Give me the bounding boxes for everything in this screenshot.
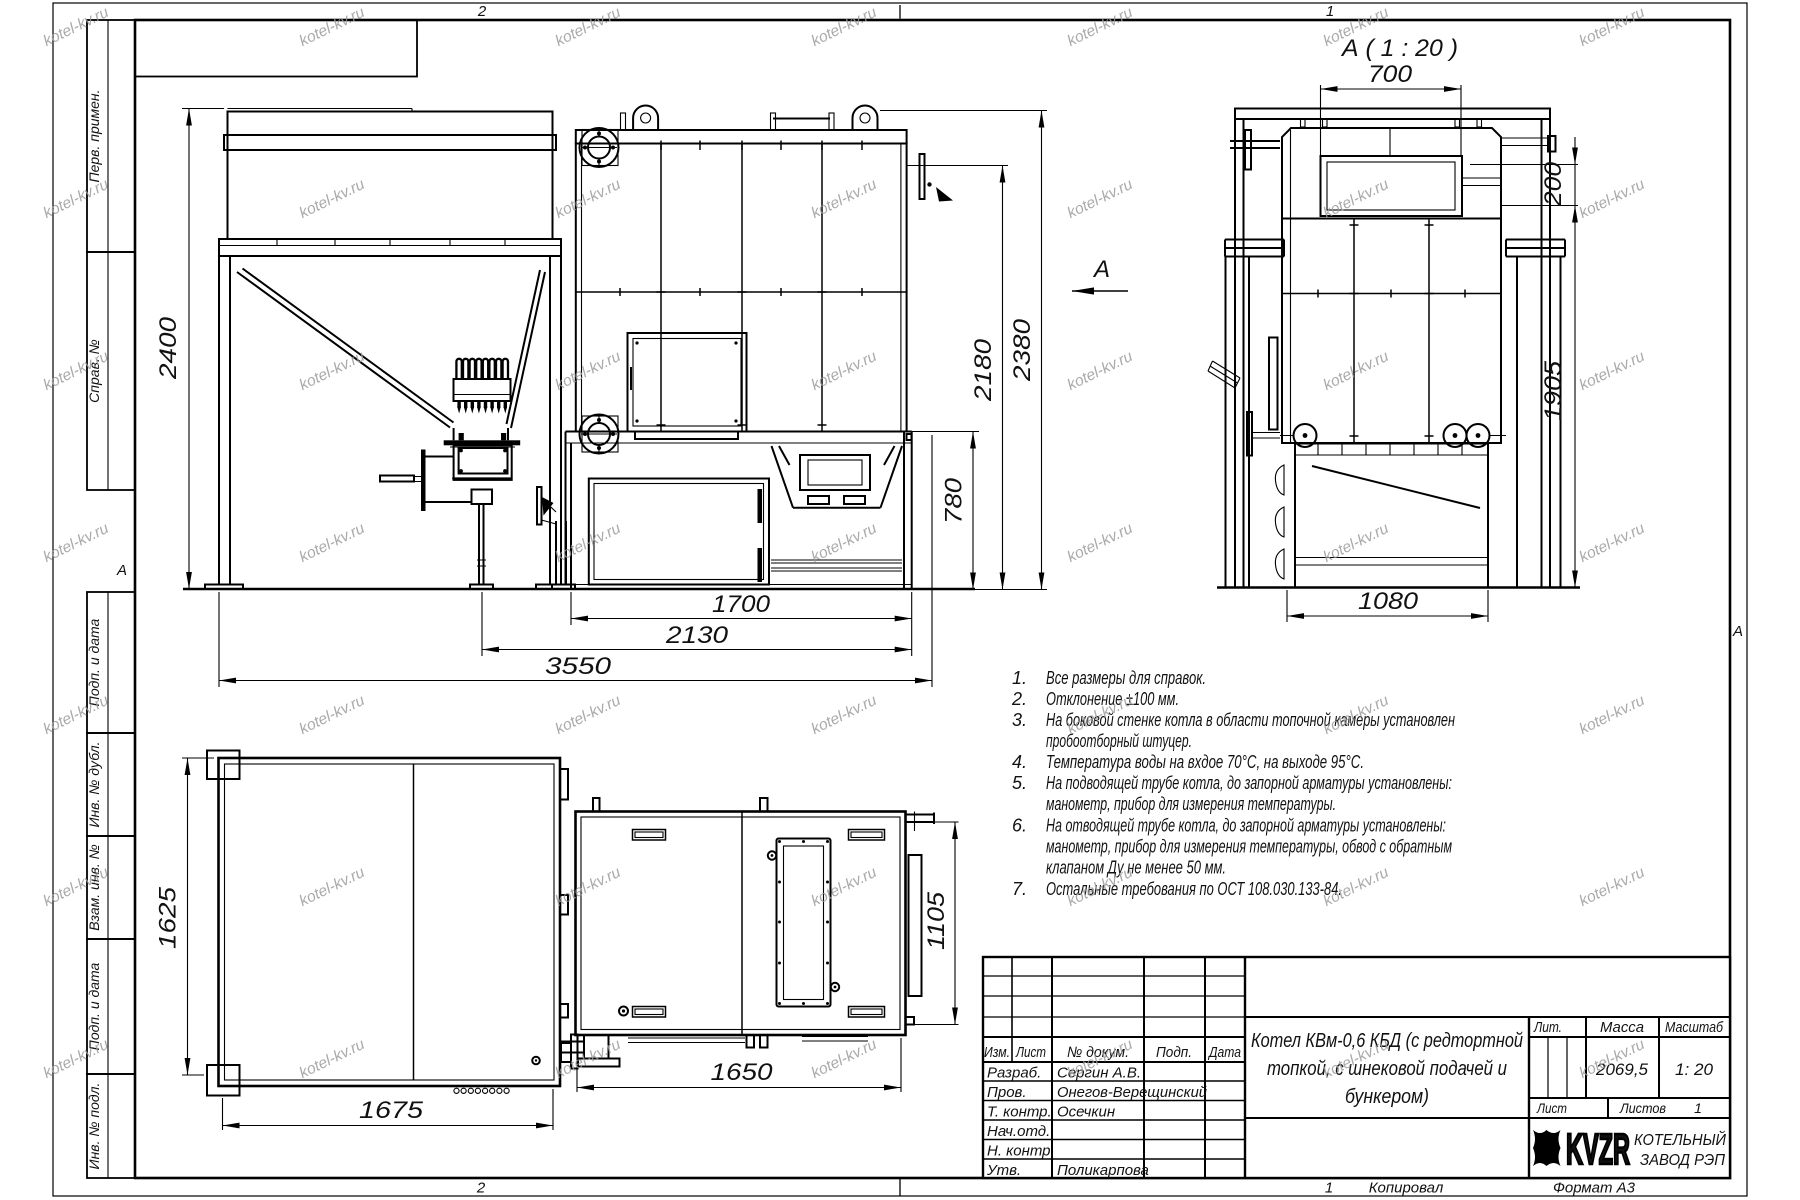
svg-text:2: 2 [476, 1180, 486, 1197]
svg-text:3.: 3. [1012, 710, 1027, 730]
svg-text:Разраб.: Разраб. [987, 1065, 1041, 1082]
svg-text:1080: 1080 [1358, 588, 1419, 615]
svg-text:манометр, прибор для измерения: манометр, прибор для измерения температу… [1046, 794, 1336, 814]
svg-text:6.: 6. [1012, 816, 1027, 836]
svg-text:2: 2 [477, 3, 487, 20]
svg-text:Подп.: Подп. [1156, 1044, 1192, 1061]
svg-text:2400: 2400 [155, 316, 182, 380]
svg-text:А: А [1092, 256, 1110, 283]
svg-text:1700: 1700 [712, 591, 771, 618]
svg-text:Лист: Лист [1536, 1100, 1567, 1116]
svg-text:Масса: Масса [1600, 1019, 1644, 1036]
svg-text:1105: 1105 [923, 891, 950, 950]
svg-text:манометр, прибор для измерения: манометр, прибор для измерения температу… [1046, 837, 1452, 857]
svg-text:топкой, с шнековой подачей и: топкой, с шнековой подачей и [1267, 1058, 1507, 1080]
svg-text:Нач.отд.: Нач.отд. [987, 1123, 1050, 1140]
svg-text:4.: 4. [1012, 752, 1027, 772]
svg-text:1: 1 [1326, 3, 1334, 20]
svg-text:1: 20: 1: 20 [1675, 1060, 1714, 1079]
svg-text:Листов: Листов [1619, 1100, 1666, 1116]
svg-text:Инв. № дубл.: Инв. № дубл. [86, 741, 102, 827]
svg-text:бункером): бункером) [1345, 1086, 1429, 1108]
svg-text:Инв. № подл.: Инв. № подл. [86, 1083, 102, 1170]
svg-text:Изм.: Изм. [984, 1044, 1010, 1061]
svg-text:KVZR: KVZR [1566, 1125, 1630, 1174]
svg-text:7.: 7. [1012, 879, 1027, 899]
svg-text:А: А [116, 562, 127, 579]
svg-text:Все размеры для справок.: Все размеры для справок. [1046, 668, 1206, 688]
svg-text:Дата: Дата [1207, 1044, 1241, 1061]
svg-text:1.: 1. [1012, 668, 1027, 688]
svg-text:клапаном Ду не менее 50 мм.: клапаном Ду не менее 50 мм. [1046, 858, 1226, 878]
svg-text:Лист: Лист [1015, 1044, 1046, 1061]
svg-text:2380: 2380 [1009, 318, 1036, 382]
svg-text:Пров.: Пров. [987, 1084, 1027, 1101]
svg-text:1905: 1905 [1540, 360, 1567, 421]
svg-text:КОТЕЛЬНЫЙ: КОТЕЛЬНЫЙ [1634, 1131, 1727, 1149]
svg-text:1: 1 [1694, 1100, 1702, 1116]
svg-text:Осечкин: Осечкин [1057, 1104, 1115, 1121]
svg-text:Лит.: Лит. [1533, 1019, 1562, 1036]
svg-text:Масштаб: Масштаб [1665, 1019, 1723, 1036]
svg-text:На отводящей трубе котла, до з: На отводящей трубе котла, до запорной ар… [1046, 816, 1446, 836]
svg-text:А: А [1732, 623, 1743, 640]
svg-text:5.: 5. [1012, 773, 1027, 793]
svg-text:Т. контр.: Т. контр. [987, 1104, 1052, 1121]
svg-text:3550: 3550 [545, 653, 612, 680]
svg-text:1625: 1625 [155, 886, 182, 949]
svg-text:На подводящей трубе котла, до: На подводящей трубе котла, до запорной а… [1046, 773, 1452, 793]
svg-text:200: 200 [1540, 161, 1567, 207]
svg-text:ЗАВОД РЭП: ЗАВОД РЭП [1640, 1152, 1726, 1169]
svg-text:Н. контр.: Н. контр. [987, 1143, 1055, 1160]
svg-text:Утв.: Утв. [986, 1162, 1021, 1179]
svg-text:Онегов-Верещинский: Онегов-Верещинский [1057, 1084, 1208, 1101]
svg-text:1675: 1675 [359, 1097, 424, 1124]
svg-text:пробоотборный штуцер.: пробоотборный штуцер. [1046, 731, 1192, 751]
svg-text:Перв. примен.: Перв. примен. [86, 89, 102, 182]
svg-text:Температура воды на вхдое 70°С: Температура воды на вхдое 70°С, на выход… [1046, 752, 1364, 772]
svg-text:А ( 1 : 20 ): А ( 1 : 20 ) [1340, 35, 1458, 62]
svg-text:Формат А3: Формат А3 [1553, 1180, 1636, 1197]
svg-text:1650: 1650 [711, 1059, 774, 1086]
svg-text:Копировал: Копировал [1369, 1180, 1444, 1197]
svg-text:2180: 2180 [970, 338, 997, 402]
svg-text:2.: 2. [1011, 689, 1027, 709]
svg-text:780: 780 [941, 477, 968, 524]
svg-text:1: 1 [1325, 1180, 1333, 1197]
svg-text:Поликарпова: Поликарпова [1057, 1162, 1149, 1179]
svg-text:700: 700 [1368, 61, 1413, 88]
svg-text:2130: 2130 [665, 622, 729, 649]
